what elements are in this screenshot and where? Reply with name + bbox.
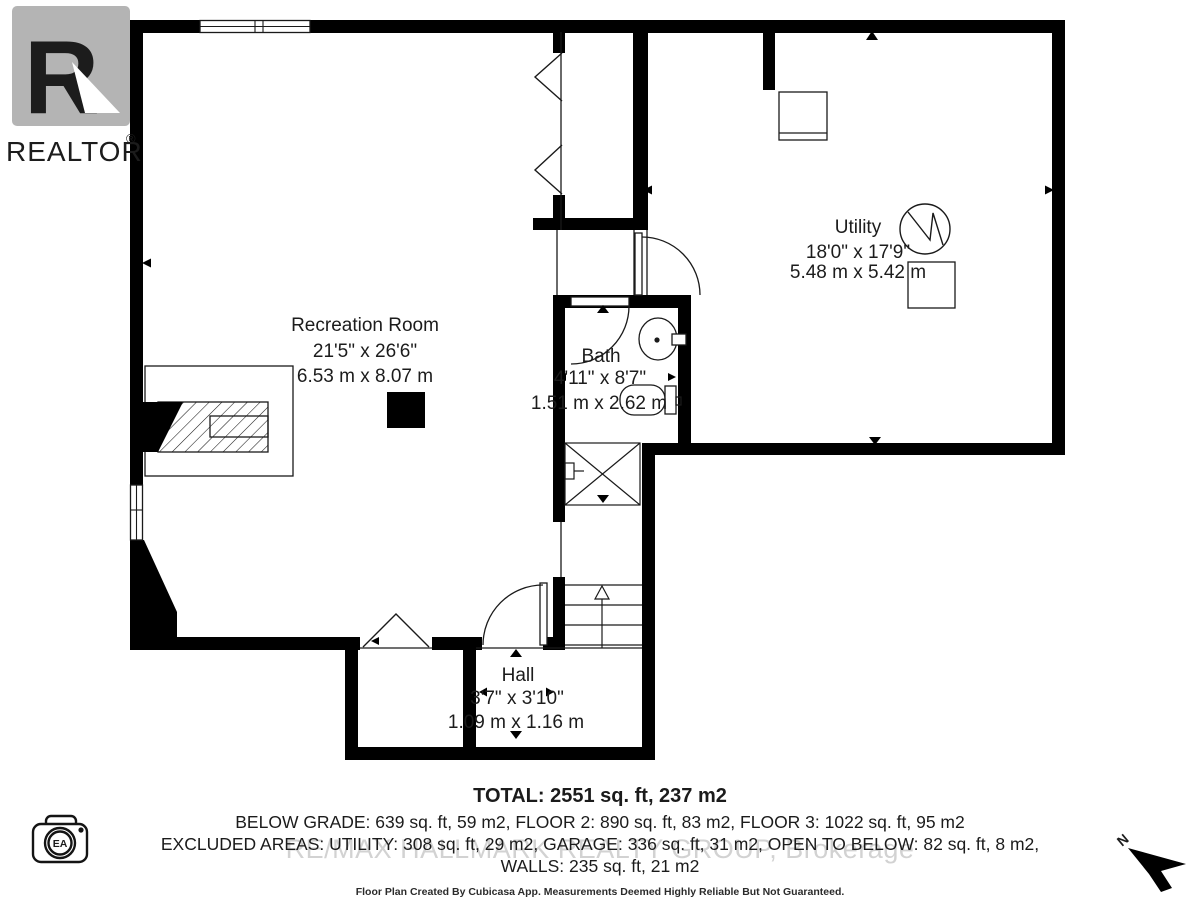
registered-mark: ® bbox=[126, 131, 136, 146]
room-name: Recreation Room bbox=[291, 315, 439, 336]
door-hall bbox=[483, 583, 547, 645]
area-summary: TOTAL: 2551 sq. ft, 237 m2 BELOW GRADE: … bbox=[0, 785, 1200, 898]
disclaimer-text: Floor Plan Created By Cubicasa App. Meas… bbox=[0, 886, 1200, 898]
fireplace bbox=[130, 366, 293, 476]
room-dim-imperial: 21'5" x 26'6" bbox=[313, 341, 417, 362]
door-utility bbox=[635, 233, 700, 295]
room-dim-imperial: 3'7" x 3'10" bbox=[470, 688, 564, 709]
room-label-recreation-room: Recreation Room 21'5" x 26'6" 6.53 m x 8… bbox=[291, 315, 439, 387]
room-dim-imperial: 4'11" x 8'7" bbox=[554, 368, 646, 389]
openings bbox=[360, 32, 647, 648]
room-dim-metric: 6.53 m x 8.07 m bbox=[297, 366, 433, 387]
bifold-door-storage bbox=[363, 614, 429, 647]
room-name: Bath bbox=[581, 346, 620, 367]
floor-plan-page: RE/MAX HALLMARK REALTY GROUP, Brokerage bbox=[0, 0, 1200, 900]
stairs-up-arrow bbox=[595, 586, 609, 599]
washer bbox=[779, 92, 827, 140]
floor-plan-drawing: Recreation Room 21'5" x 26'6" 6.53 m x 8… bbox=[0, 0, 1200, 900]
bifold-doors-closet-channel bbox=[535, 53, 562, 194]
window-left bbox=[131, 485, 143, 540]
staircase bbox=[565, 585, 642, 648]
room-dim-imperial: 18'0" x 17'9" bbox=[806, 242, 910, 263]
excluded-area-line: EXCLUDED AREAS: UTILITY: 308 sq. ft, 29 … bbox=[0, 833, 1200, 855]
realtor-wordmark: REALTOR bbox=[6, 136, 143, 167]
room-dim-metric: 1.09 m x 1.16 m bbox=[448, 712, 584, 733]
walls bbox=[130, 20, 1065, 760]
walls-area-line: WALLS: 235 sq. ft, 21 m2 bbox=[0, 855, 1200, 877]
room-dim-metric: 5.48 m x 5.42 m bbox=[790, 262, 926, 283]
room-name: Utility bbox=[835, 217, 882, 238]
room-label-utility: Utility 18'0" x 17'9" 5.48 m x 5.42 m bbox=[790, 217, 926, 283]
realtor-logo-letter: R bbox=[24, 20, 99, 136]
total-area-line: TOTAL: 2551 sq. ft, 237 m2 bbox=[0, 785, 1200, 808]
floors-area-line: BELOW GRADE: 639 sq. ft, 59 m2, FLOOR 2:… bbox=[0, 811, 1200, 833]
support-column bbox=[387, 392, 425, 428]
realtor-logo: R REALTOR ® bbox=[6, 6, 143, 167]
window-top bbox=[200, 21, 310, 33]
room-dim-metric: 1.51 m x 2.62 m bbox=[531, 393, 667, 414]
room-name: Hall bbox=[502, 665, 535, 686]
